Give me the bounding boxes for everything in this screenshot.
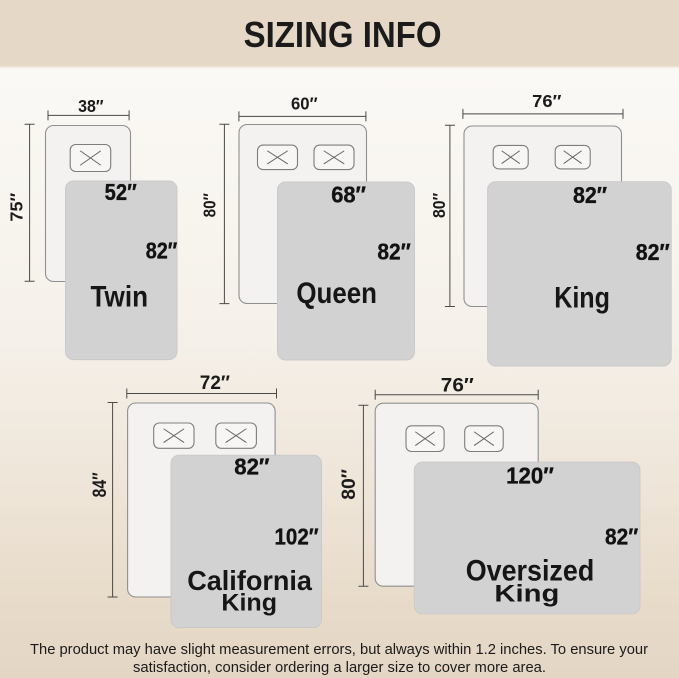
svg-text:Twin: Twin <box>91 281 149 314</box>
svg-text:King: King <box>221 590 277 617</box>
svg-text:82″: 82″ <box>636 239 670 265</box>
svg-text:King: King <box>494 581 559 608</box>
svg-text:102″: 102″ <box>275 523 319 549</box>
svg-text:60″: 60″ <box>291 94 318 114</box>
svg-text:84″: 84″ <box>89 472 111 497</box>
svg-text:52″: 52″ <box>105 179 137 205</box>
svg-text:76″: 76″ <box>441 375 474 397</box>
svg-text:Queen: Queen <box>296 277 377 310</box>
svg-text:80″: 80″ <box>338 469 360 500</box>
svg-text:82″: 82″ <box>573 182 607 208</box>
svg-text:SIZING INFO: SIZING INFO <box>244 14 442 55</box>
svg-text:82″: 82″ <box>377 238 410 264</box>
svg-text:82″: 82″ <box>234 454 269 480</box>
svg-text:82″: 82″ <box>605 523 638 549</box>
svg-text:120″: 120″ <box>506 463 554 489</box>
svg-text:King: King <box>554 281 610 314</box>
svg-text:The product may have slight me: The product may have slight measurement … <box>30 641 648 658</box>
svg-text:80″: 80″ <box>429 192 449 218</box>
svg-text:82″: 82″ <box>146 237 178 263</box>
svg-text:72″: 72″ <box>200 372 230 394</box>
svg-text:satisfaction, consider orderin: satisfaction, consider ordering a larger… <box>133 659 546 676</box>
svg-text:38″: 38″ <box>78 96 104 116</box>
svg-text:68″: 68″ <box>331 182 366 208</box>
svg-text:76″: 76″ <box>532 91 562 111</box>
svg-text:75″: 75″ <box>7 192 27 221</box>
svg-text:80″: 80″ <box>200 193 220 218</box>
